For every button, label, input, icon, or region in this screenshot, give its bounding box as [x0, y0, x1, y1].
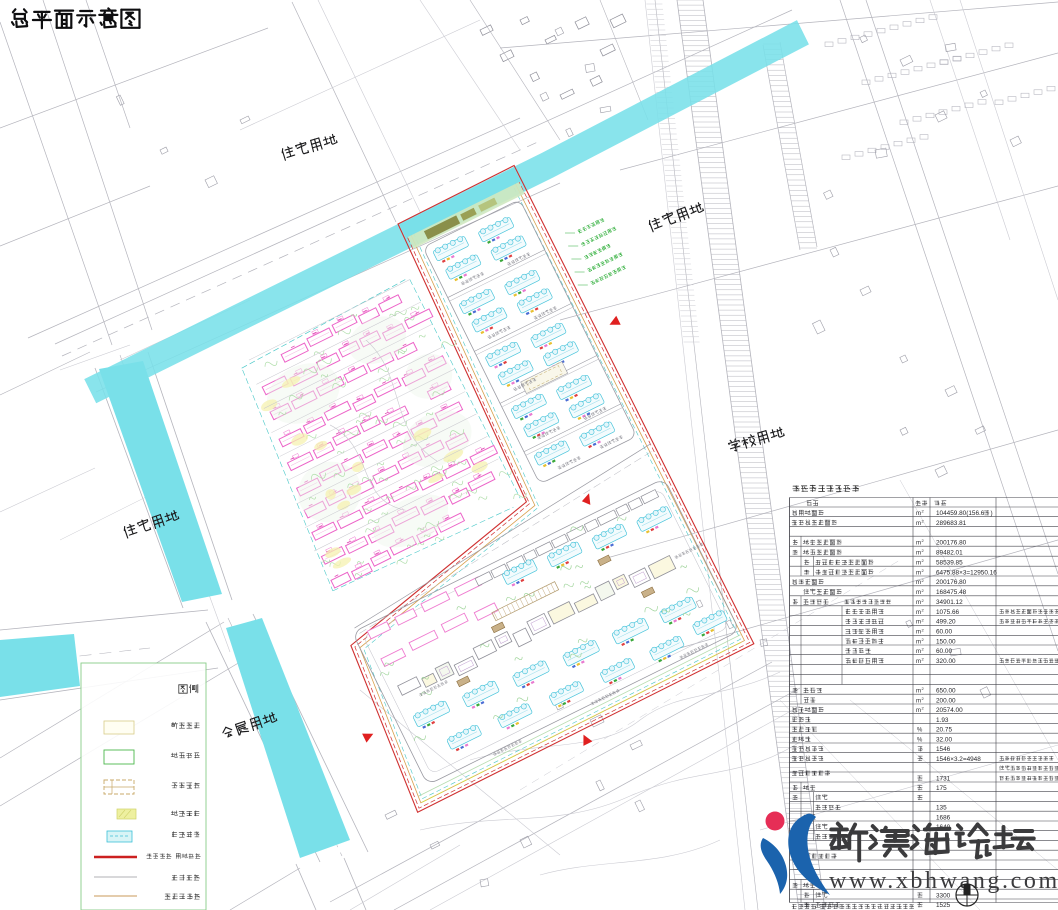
svg-text:499.20: 499.20 [936, 619, 956, 626]
svg-text:1525: 1525 [936, 902, 951, 909]
svg-text:32.00: 32.00 [936, 736, 952, 743]
svg-text:m: m [916, 600, 921, 606]
svg-text:150.00: 150.00 [936, 638, 956, 645]
svg-text:m: m [916, 630, 921, 636]
svg-text:m: m [916, 620, 921, 626]
svg-text:650.00: 650.00 [936, 688, 956, 695]
svg-text:135: 135 [936, 805, 947, 812]
svg-text:m: m [916, 708, 921, 714]
svg-text:168475.48: 168475.48 [936, 589, 967, 596]
svg-text:104459.80(156.6: 104459.80(156.6 [936, 510, 985, 517]
svg-text:20574.00: 20574.00 [936, 707, 963, 714]
svg-text:m: m [916, 521, 921, 527]
svg-text:1075.66: 1075.66 [936, 609, 960, 616]
svg-text:): ) [991, 510, 993, 517]
svg-text:200.00: 200.00 [936, 697, 956, 704]
svg-text:m: m [916, 698, 921, 704]
svg-text:m: m [916, 570, 921, 576]
svg-text:1731: 1731 [936, 775, 951, 782]
svg-text:m: m [916, 659, 921, 665]
svg-text:200176.80: 200176.80 [936, 579, 967, 586]
svg-text:m: m [916, 511, 921, 517]
svg-text:200176.80: 200176.80 [936, 540, 967, 547]
svg-text:m: m [916, 639, 921, 645]
svg-text:m: m [916, 590, 921, 596]
svg-text:m: m [916, 610, 921, 616]
svg-text:m: m [916, 561, 921, 567]
svg-text:%: % [917, 728, 923, 734]
svg-text:1546: 1546 [936, 746, 951, 753]
svg-text:m: m [916, 541, 921, 547]
svg-text:34901.12: 34901.12 [936, 599, 963, 606]
svg-text:%: % [917, 737, 923, 743]
svg-text:20.75: 20.75 [936, 727, 952, 734]
svg-text:289683.81: 289683.81 [936, 520, 967, 527]
svg-text:6475.88×3=12950.16: 6475.88×3=12950.16 [936, 569, 997, 576]
svg-text:1686: 1686 [936, 814, 951, 821]
svg-text:m: m [916, 551, 921, 557]
svg-text:60.00: 60.00 [936, 648, 952, 655]
svg-text:m: m [916, 580, 921, 586]
svg-text:60.00: 60.00 [936, 629, 952, 636]
svg-text:175: 175 [936, 785, 947, 792]
svg-text:1546×3.2=4948: 1546×3.2=4948 [936, 756, 981, 763]
svg-text:1.93: 1.93 [936, 717, 949, 724]
svg-text:www.xbhwang.com: www.xbhwang.com [829, 868, 1058, 894]
svg-text:320.00: 320.00 [936, 658, 956, 665]
svg-text:m: m [916, 649, 921, 655]
svg-text:89482.01: 89482.01 [936, 550, 963, 557]
svg-text:58539.85: 58539.85 [936, 560, 963, 567]
svg-text:m: m [916, 689, 921, 695]
